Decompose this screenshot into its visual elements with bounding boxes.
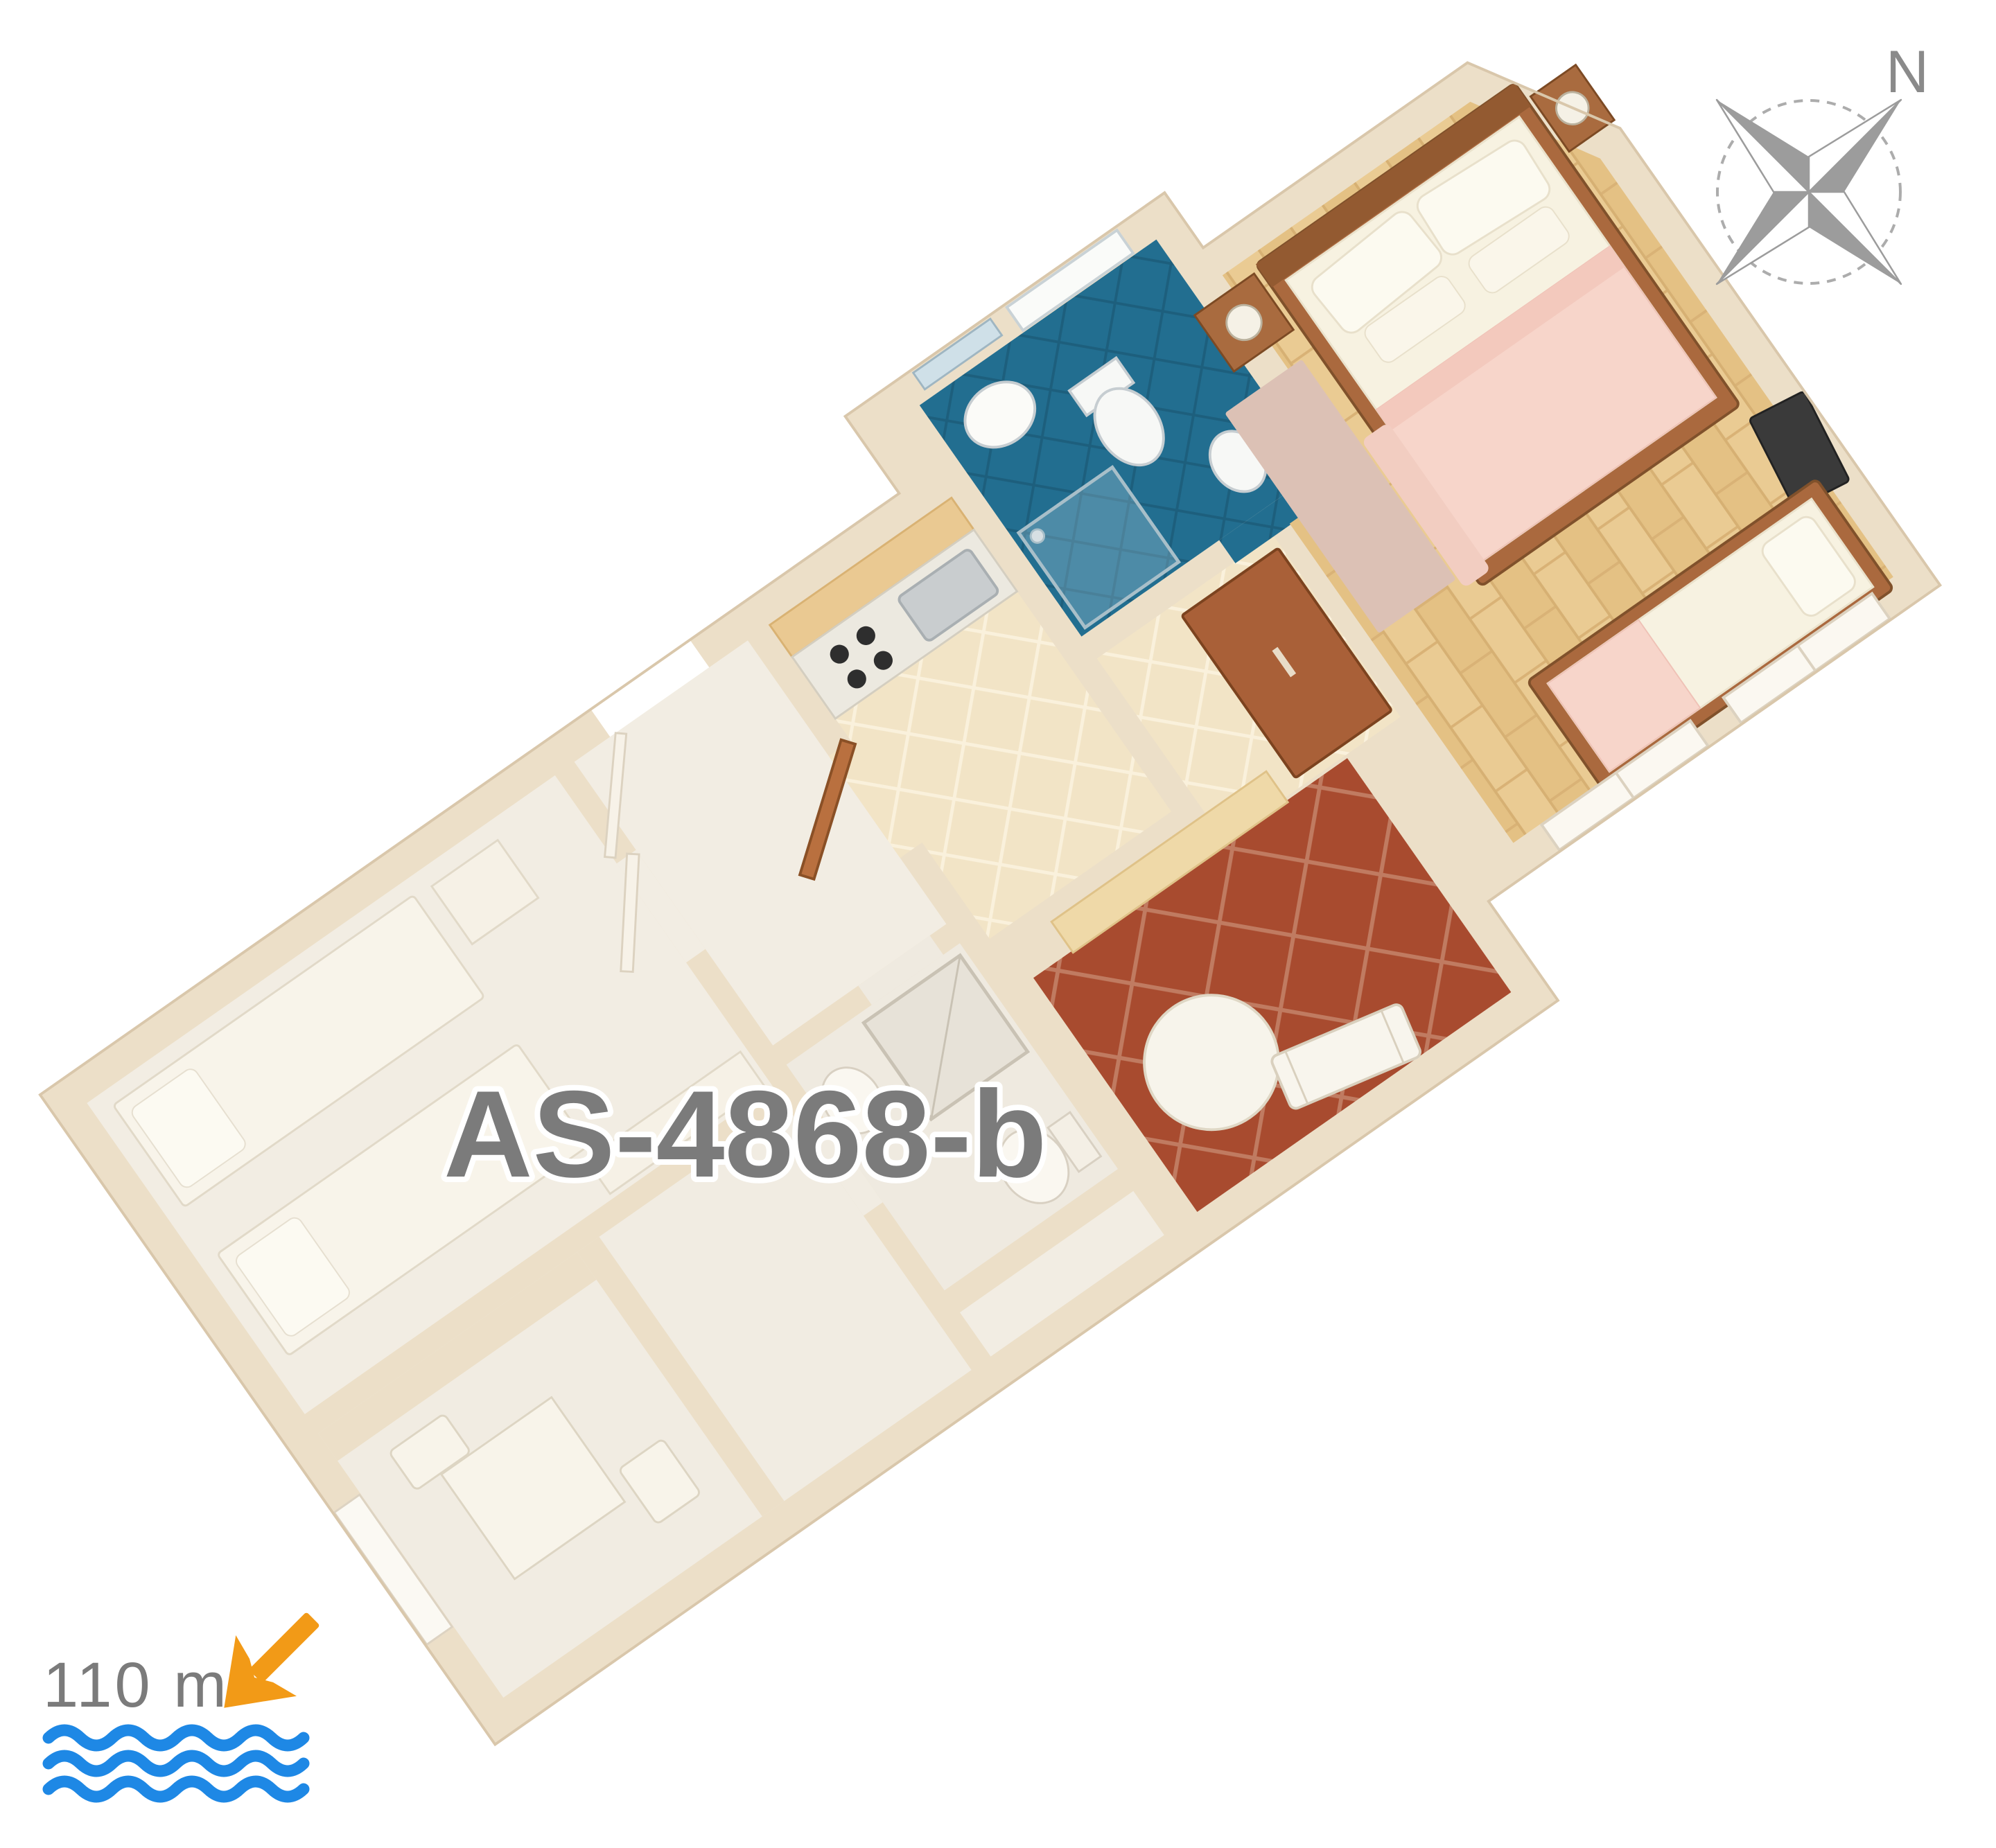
building-3d-view (0, 0, 1996, 1745)
wave-line (49, 1781, 304, 1797)
wave-line (49, 1730, 304, 1745)
unit-label: AS-4868-b (444, 1065, 1047, 1203)
floorplan-page: AS-4868-b N 110 m (0, 0, 1996, 1848)
floorplan-canvas: AS-4868-b N 110 m (0, 0, 1996, 1848)
wave-line (49, 1756, 304, 1771)
distance-label: 110 m (43, 1650, 229, 1721)
north-label: N (1886, 39, 1929, 105)
sea-waves-icon (49, 1730, 304, 1797)
